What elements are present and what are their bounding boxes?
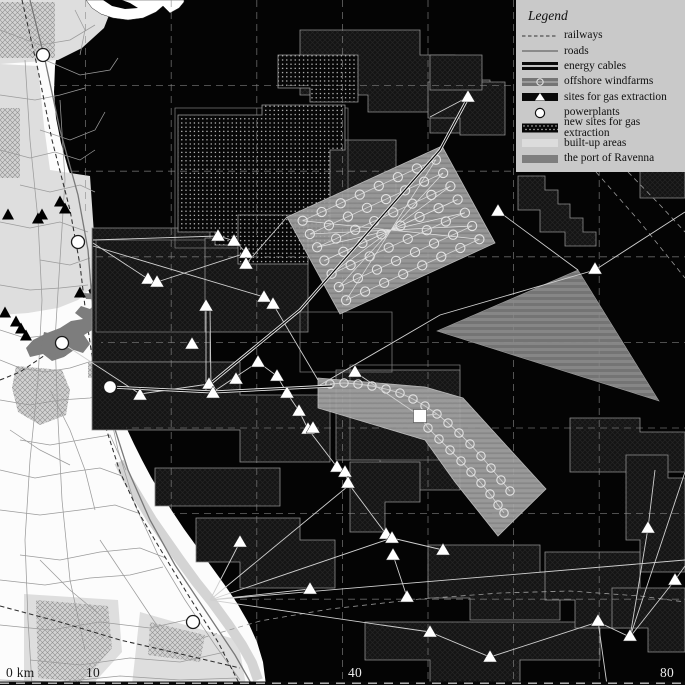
- cable-swatch-icon: [516, 60, 564, 72]
- legend-label-new-gas-sites: new sites for gas extraction: [564, 117, 685, 139]
- legend-label-gas-sites: sites for gas extraction: [564, 92, 667, 103]
- scale-label-2: 40: [348, 665, 362, 681]
- legend-item-offshore-windfarms: offshore windfarms: [516, 74, 685, 89]
- scale-label-3: 80: [660, 665, 674, 681]
- legend-label-railways: railways: [564, 30, 603, 41]
- powerplant-marker: [56, 337, 69, 350]
- legend-item-energy-cables: energy cables: [516, 59, 685, 74]
- builtup-swatch-icon: [516, 137, 564, 149]
- port-swatch-icon: [516, 153, 564, 165]
- legend-rows: railwaysroadsenergy cablesoffshore windf…: [516, 28, 685, 167]
- legend-label-port-ravenna: the port of Ravenna: [564, 153, 654, 164]
- legend-label-roads: roads: [564, 46, 589, 57]
- powerplant-circle-icon: [516, 107, 564, 119]
- ravenna-offshore-map: Legend railwaysroadsenergy cablesoffshor…: [0, 0, 685, 685]
- legend-title: Legend: [528, 8, 685, 24]
- railway-line-icon: [516, 30, 564, 42]
- legend-panel: Legend railwaysroadsenergy cablesoffshor…: [516, 0, 685, 172]
- road-line-icon: [516, 45, 564, 57]
- windfarm-substation-square: [414, 410, 427, 423]
- legend-item-port-ravenna: the port of Ravenna: [516, 151, 685, 166]
- legend-item-gas-sites: sites for gas extraction: [516, 90, 685, 105]
- windfarm-swatch-icon: [516, 76, 564, 88]
- scale-label-0: 0 km: [6, 665, 35, 681]
- gas-swatch-icon: [516, 91, 564, 103]
- legend-item-railways: railways: [516, 28, 685, 43]
- scale-bar: [0, 682, 685, 685]
- powerplant-marker: [72, 236, 85, 249]
- powerplant-marker: [104, 381, 117, 394]
- powerplant-marker: [187, 616, 200, 629]
- scale-label-1: 10: [86, 665, 100, 681]
- powerplant-marker: [37, 49, 50, 62]
- legend-label-energy-cables: energy cables: [564, 61, 626, 72]
- legend-label-offshore-windfarms: offshore windfarms: [564, 76, 653, 87]
- legend-label-built-up: built-up areas: [564, 138, 626, 149]
- legend-item-new-gas-sites: new sites for gas extraction: [516, 120, 685, 135]
- newgas-swatch-icon: [516, 122, 564, 134]
- legend-item-roads: roads: [516, 43, 685, 58]
